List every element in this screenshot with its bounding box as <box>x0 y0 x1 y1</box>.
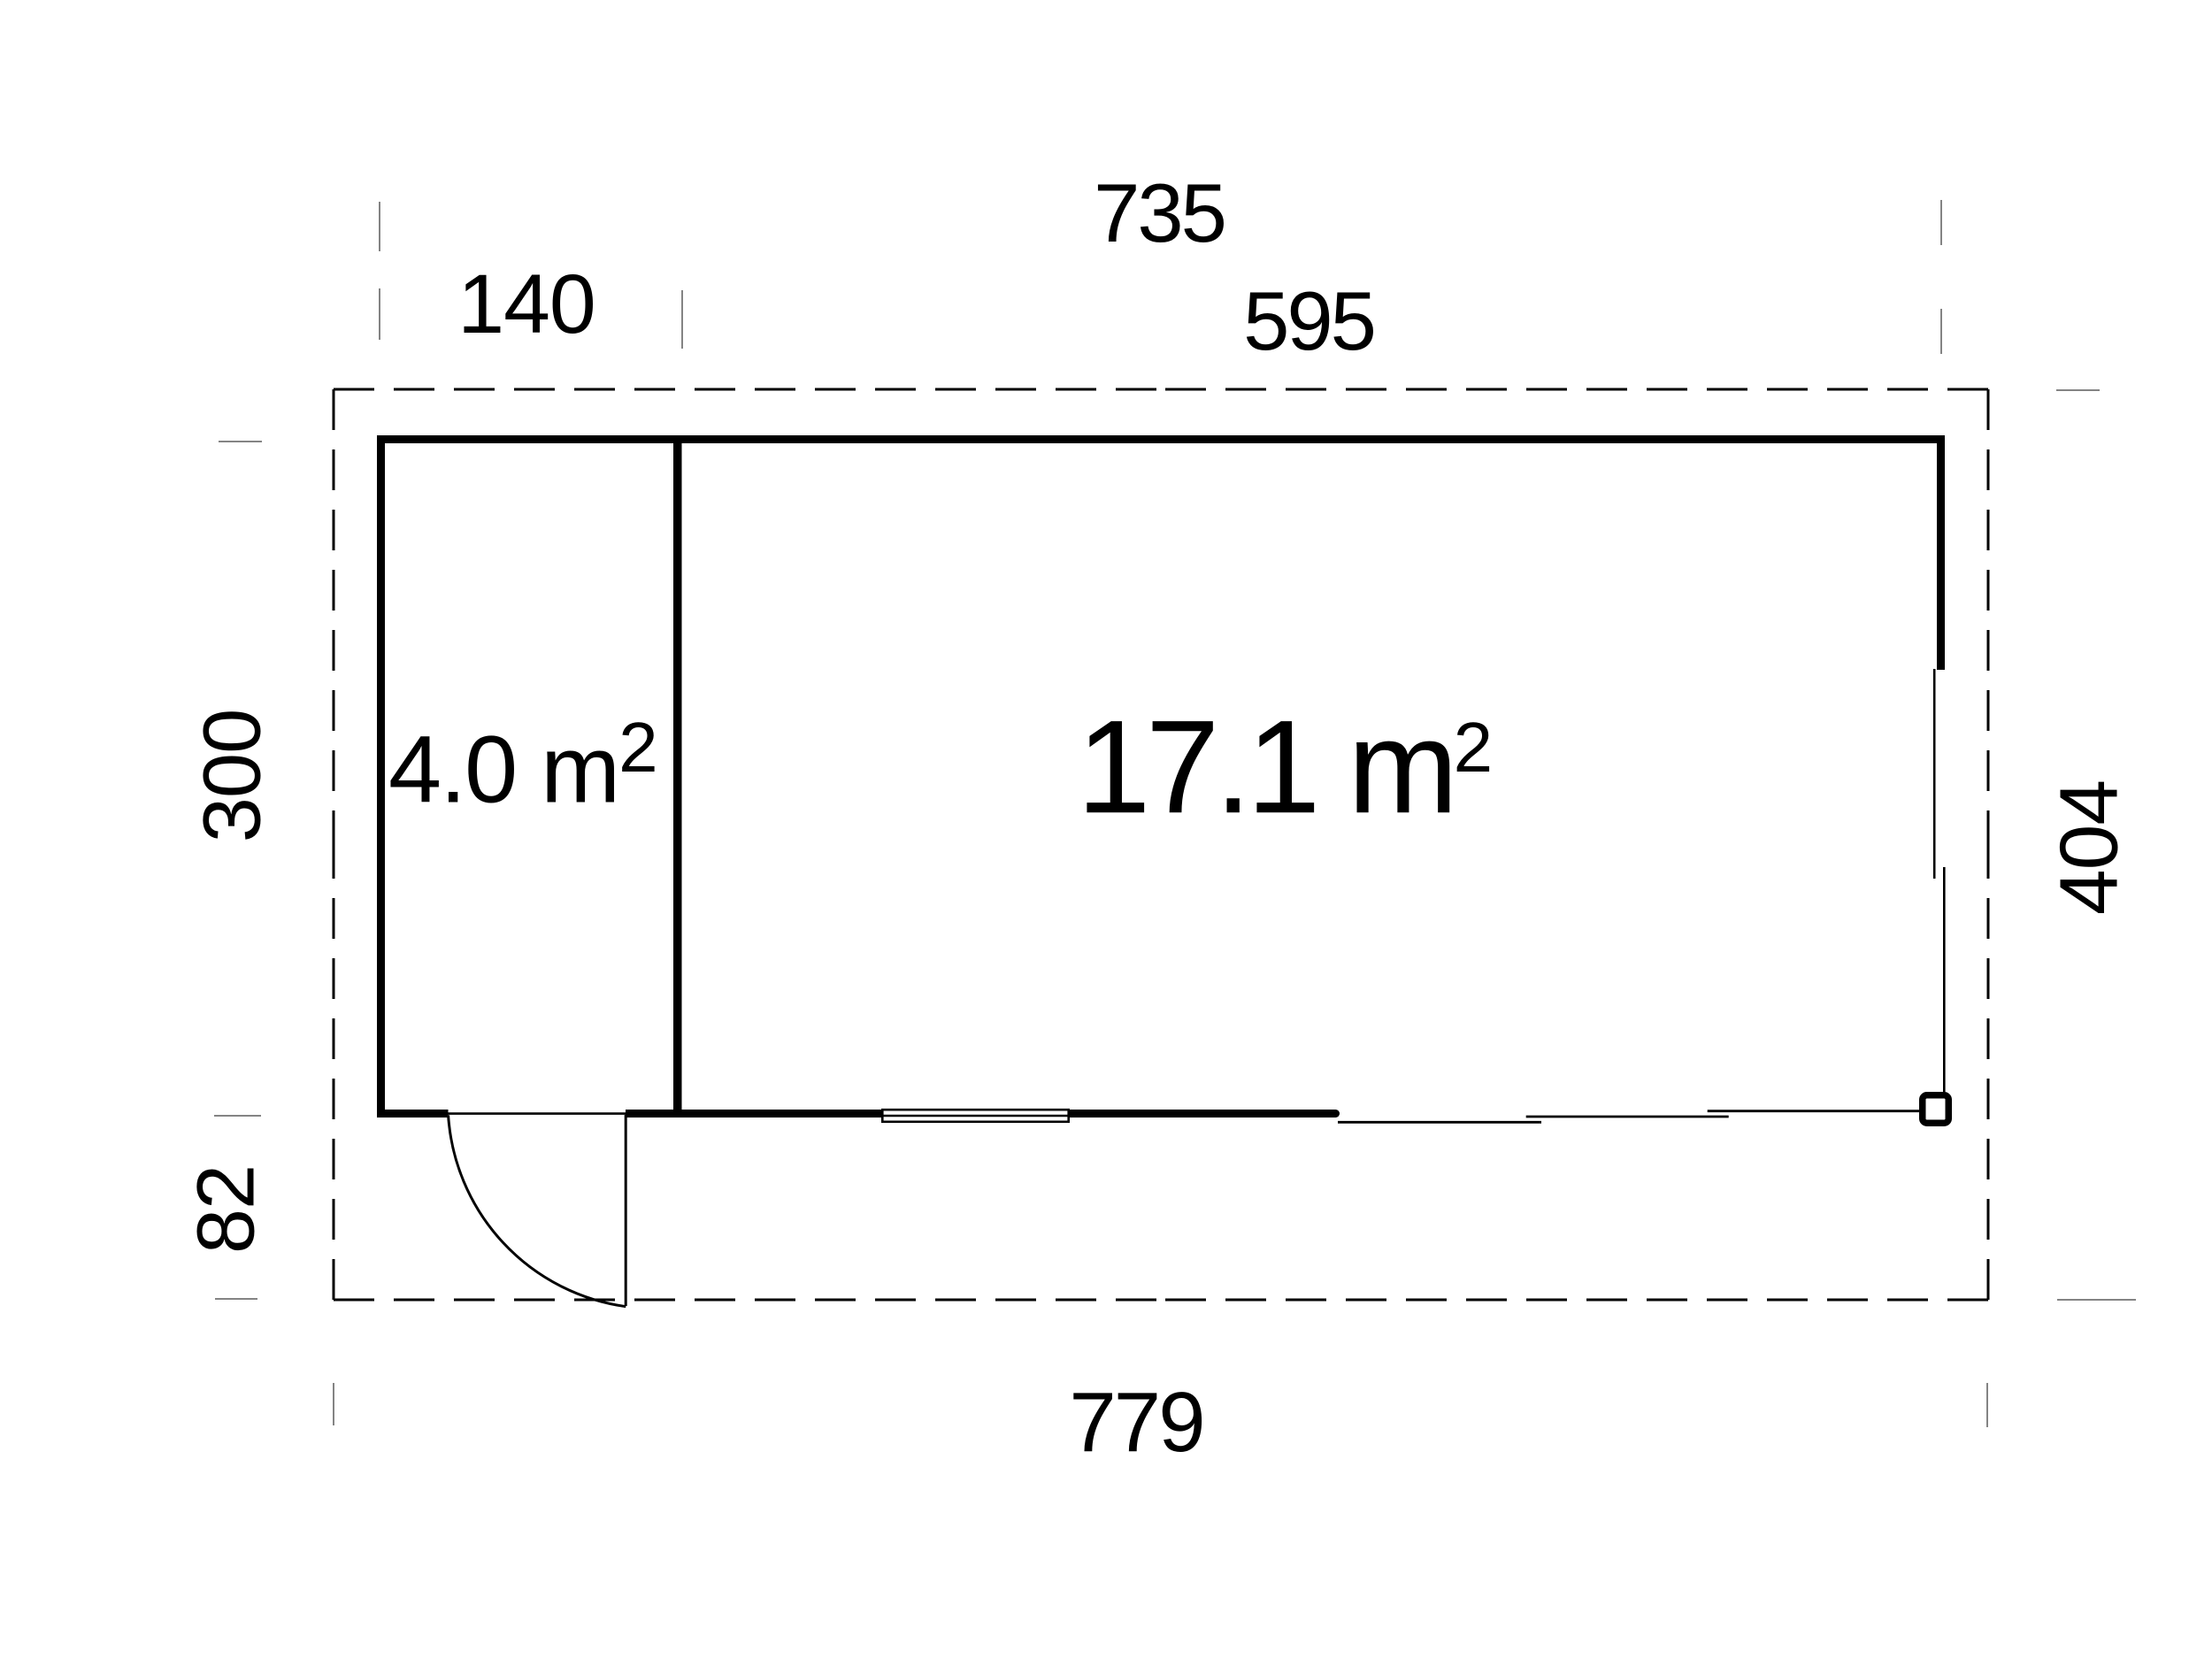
svg-text:735: 735 <box>1094 166 1225 259</box>
svg-text:17.1 m2: 17.1 m2 <box>1077 692 1493 841</box>
svg-text:595: 595 <box>1243 274 1374 367</box>
svg-text:300: 300 <box>187 710 277 843</box>
svg-text:779: 779 <box>1069 1375 1202 1470</box>
svg-text:4.0 m2: 4.0 m2 <box>388 708 658 823</box>
svg-text:404: 404 <box>2043 780 2135 915</box>
svg-text:82: 82 <box>180 1165 271 1254</box>
svg-text:140: 140 <box>457 257 595 351</box>
